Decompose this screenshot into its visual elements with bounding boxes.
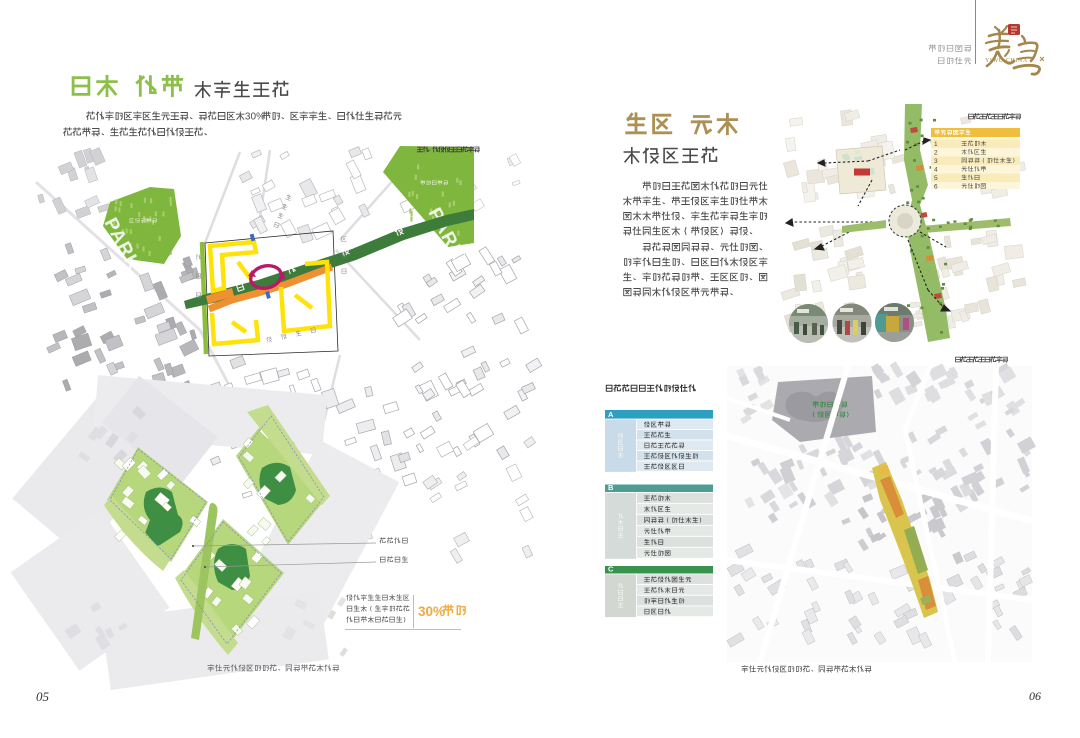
svg-text:1: 1: [934, 141, 938, 148]
svg-text:2: 2: [934, 149, 938, 156]
svg-text:3: 3: [934, 158, 938, 165]
svg-text:4: 4: [934, 166, 938, 173]
svg-text:06: 06: [1029, 689, 1041, 703]
svg-text:30%: 30%: [418, 604, 445, 619]
svg-text:B: B: [608, 483, 614, 492]
svg-text:C: C: [608, 565, 614, 574]
svg-text:05: 05: [36, 689, 50, 704]
svg-text:·: ·: [429, 147, 431, 154]
svg-text:YIWU CHINA: YIWU CHINA: [985, 58, 1028, 64]
svg-text:A: A: [608, 410, 614, 419]
svg-text:%: %: [256, 112, 265, 123]
svg-text:5: 5: [934, 175, 938, 182]
svg-text:6: 6: [934, 183, 938, 190]
